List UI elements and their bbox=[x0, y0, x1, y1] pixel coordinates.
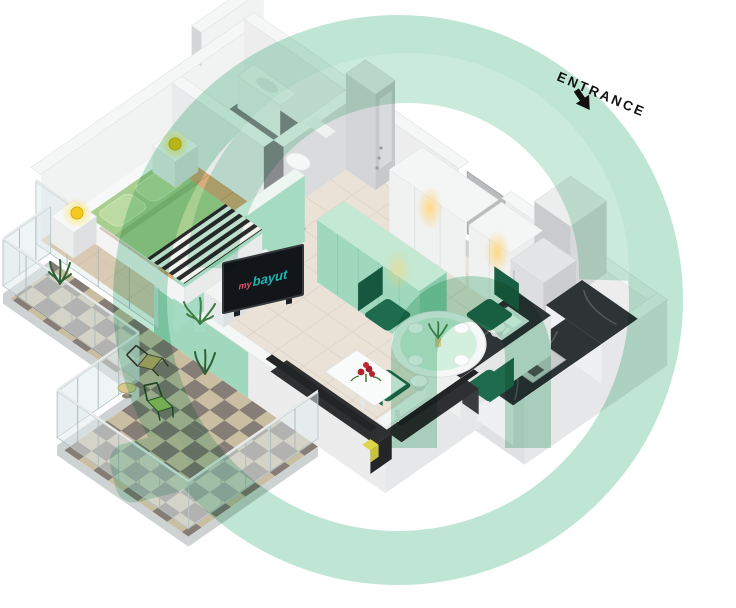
panel-dot bbox=[379, 146, 382, 149]
panel-dot bbox=[375, 166, 378, 169]
spotlight-glow bbox=[384, 248, 412, 292]
floorplan-canvas: mybayut bbox=[0, 0, 736, 608]
spotlight-glow bbox=[484, 230, 510, 274]
spotlight-glow bbox=[417, 186, 443, 230]
panel-dot bbox=[377, 156, 380, 159]
table-lamp bbox=[71, 207, 83, 219]
